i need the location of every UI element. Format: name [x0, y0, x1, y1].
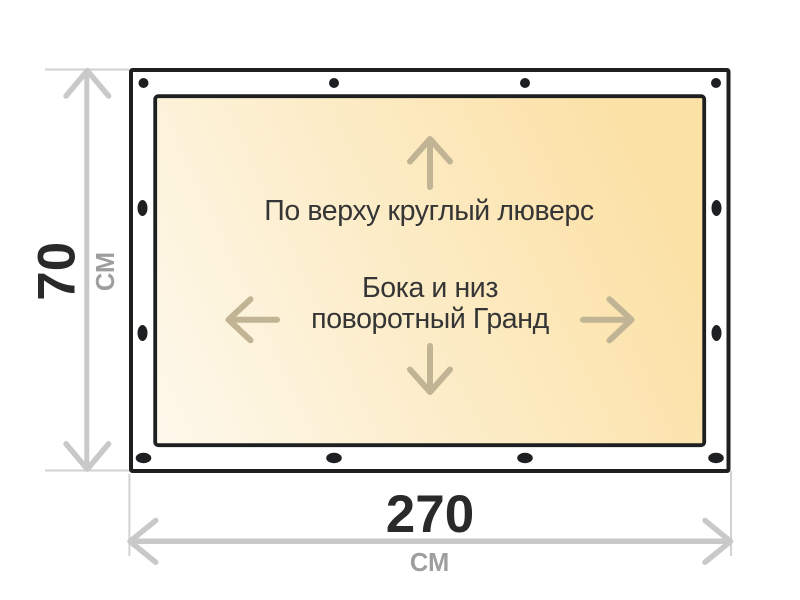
- svg-text:70: 70: [28, 242, 87, 301]
- svg-text:По верху круглый люверс: По верху круглый люверс: [264, 195, 594, 227]
- svg-text:поворотный Гранд: поворотный Гранд: [311, 303, 549, 335]
- svg-text:Бока и низ: Бока и низ: [362, 272, 498, 304]
- svg-text:СМ: СМ: [92, 252, 120, 291]
- svg-text:270: 270: [386, 485, 474, 544]
- svg-text:СМ: СМ: [410, 549, 449, 577]
